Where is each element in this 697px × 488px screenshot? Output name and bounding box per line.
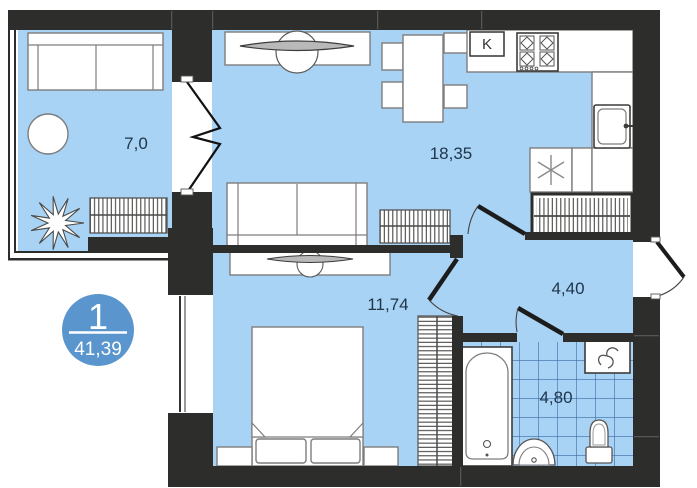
nightstand-icon: [364, 447, 398, 466]
chair-icon: [382, 43, 403, 70]
radiator-icon: [380, 210, 450, 243]
bed-icon: [252, 327, 363, 466]
wall-bottom: [168, 466, 660, 487]
nightstand-icon: [217, 447, 252, 466]
sofa-icon: [227, 183, 367, 247]
pillow: [311, 439, 360, 463]
wall-door-stub: [450, 235, 463, 258]
wall-right-lower: [633, 297, 660, 487]
badge-number: 1: [88, 296, 108, 337]
sofa-icon: [28, 33, 163, 90]
wall-balcony-bottom: [88, 237, 172, 253]
badge-total-area: 41,39: [74, 339, 122, 360]
wall-right-upper: [633, 30, 660, 242]
living-area-label: 18,35: [430, 144, 473, 163]
bathtub-icon: [462, 347, 512, 466]
wall-balcony-divider-lower: [172, 192, 212, 253]
wall-left-lower: [168, 413, 213, 466]
wall-balcony-divider-upper: [172, 30, 212, 82]
chair-icon: [444, 33, 468, 53]
chair-icon: [444, 85, 467, 108]
hallway-wardrobe-icon: [532, 194, 632, 238]
wall-bath-top-left: [463, 333, 517, 342]
kitchen-counter-corner: [592, 148, 633, 192]
wall-bedroom-bath: [452, 316, 463, 466]
pillow: [256, 439, 306, 463]
window-icon: [168, 295, 213, 413]
stove-icon: [517, 33, 558, 71]
bathroom-area-label: 4,80: [539, 388, 572, 407]
radiator-icon: [90, 198, 167, 233]
floorplan: K: [0, 0, 697, 488]
kitchen-marker: K: [470, 32, 504, 56]
dining-table-icon: [403, 35, 443, 122]
wall-living-bedroom: [213, 245, 452, 253]
kitchen-cabinet: [572, 148, 592, 192]
kitchen-marker-label: K: [482, 36, 492, 53]
round-table-icon: [28, 114, 68, 154]
washing-machine-icon: [585, 340, 630, 373]
wall-hallway-top: [525, 232, 633, 240]
wardrobe-icon: [418, 316, 456, 466]
chair-icon: [382, 82, 403, 108]
wall-bath-top-right: [563, 333, 633, 342]
balcony-area-label: 7,0: [124, 134, 148, 153]
wall-top: [8, 10, 660, 30]
bedroom-area-label: 11,74: [367, 295, 408, 314]
apartment-badge: 1 41,39: [62, 294, 134, 366]
entrance-door-icon: [651, 237, 684, 299]
hallway-area-label: 4,40: [551, 279, 584, 298]
